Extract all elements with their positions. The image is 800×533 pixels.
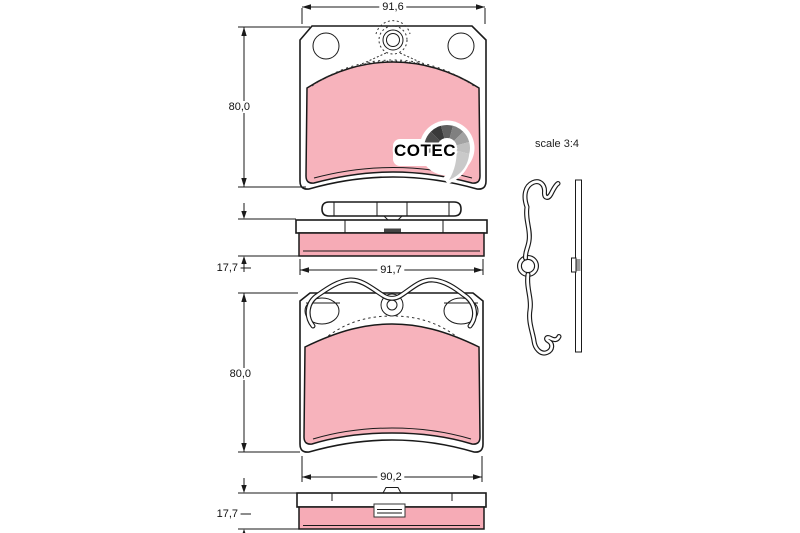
pad-top-plan-view <box>322 202 461 220</box>
pad-bottom-side-view <box>297 488 486 530</box>
wear-sensor-slot <box>374 504 405 517</box>
dim-label-middle-width: 91,7 <box>377 264 404 276</box>
dim-label-top-width: 91,6 <box>379 1 406 13</box>
dim-label-bottom-width: 90,2 <box>377 471 404 483</box>
spring-clip-side-view <box>572 180 582 352</box>
dimension-top-thickness <box>238 203 299 272</box>
dim-label-bottom-height: 80,0 <box>227 368 254 380</box>
cotec-logo-text: COTEC <box>394 141 456 160</box>
dim-label-top-height: 80,0 <box>226 101 253 113</box>
spring-clip-front-view <box>520 182 560 353</box>
scale-note: scale 3:4 <box>535 138 579 150</box>
friction-strip-top-side <box>299 233 484 256</box>
dim-label-top-thickness: 17,7 <box>214 262 241 274</box>
friction-pad-bottom <box>304 324 480 444</box>
pad-top-side-view <box>296 220 487 256</box>
pad-bottom-front-view <box>300 280 483 452</box>
dimension-bottom-thickness <box>238 478 299 533</box>
dim-label-bottom-thickness: 17,7 <box>214 508 241 520</box>
